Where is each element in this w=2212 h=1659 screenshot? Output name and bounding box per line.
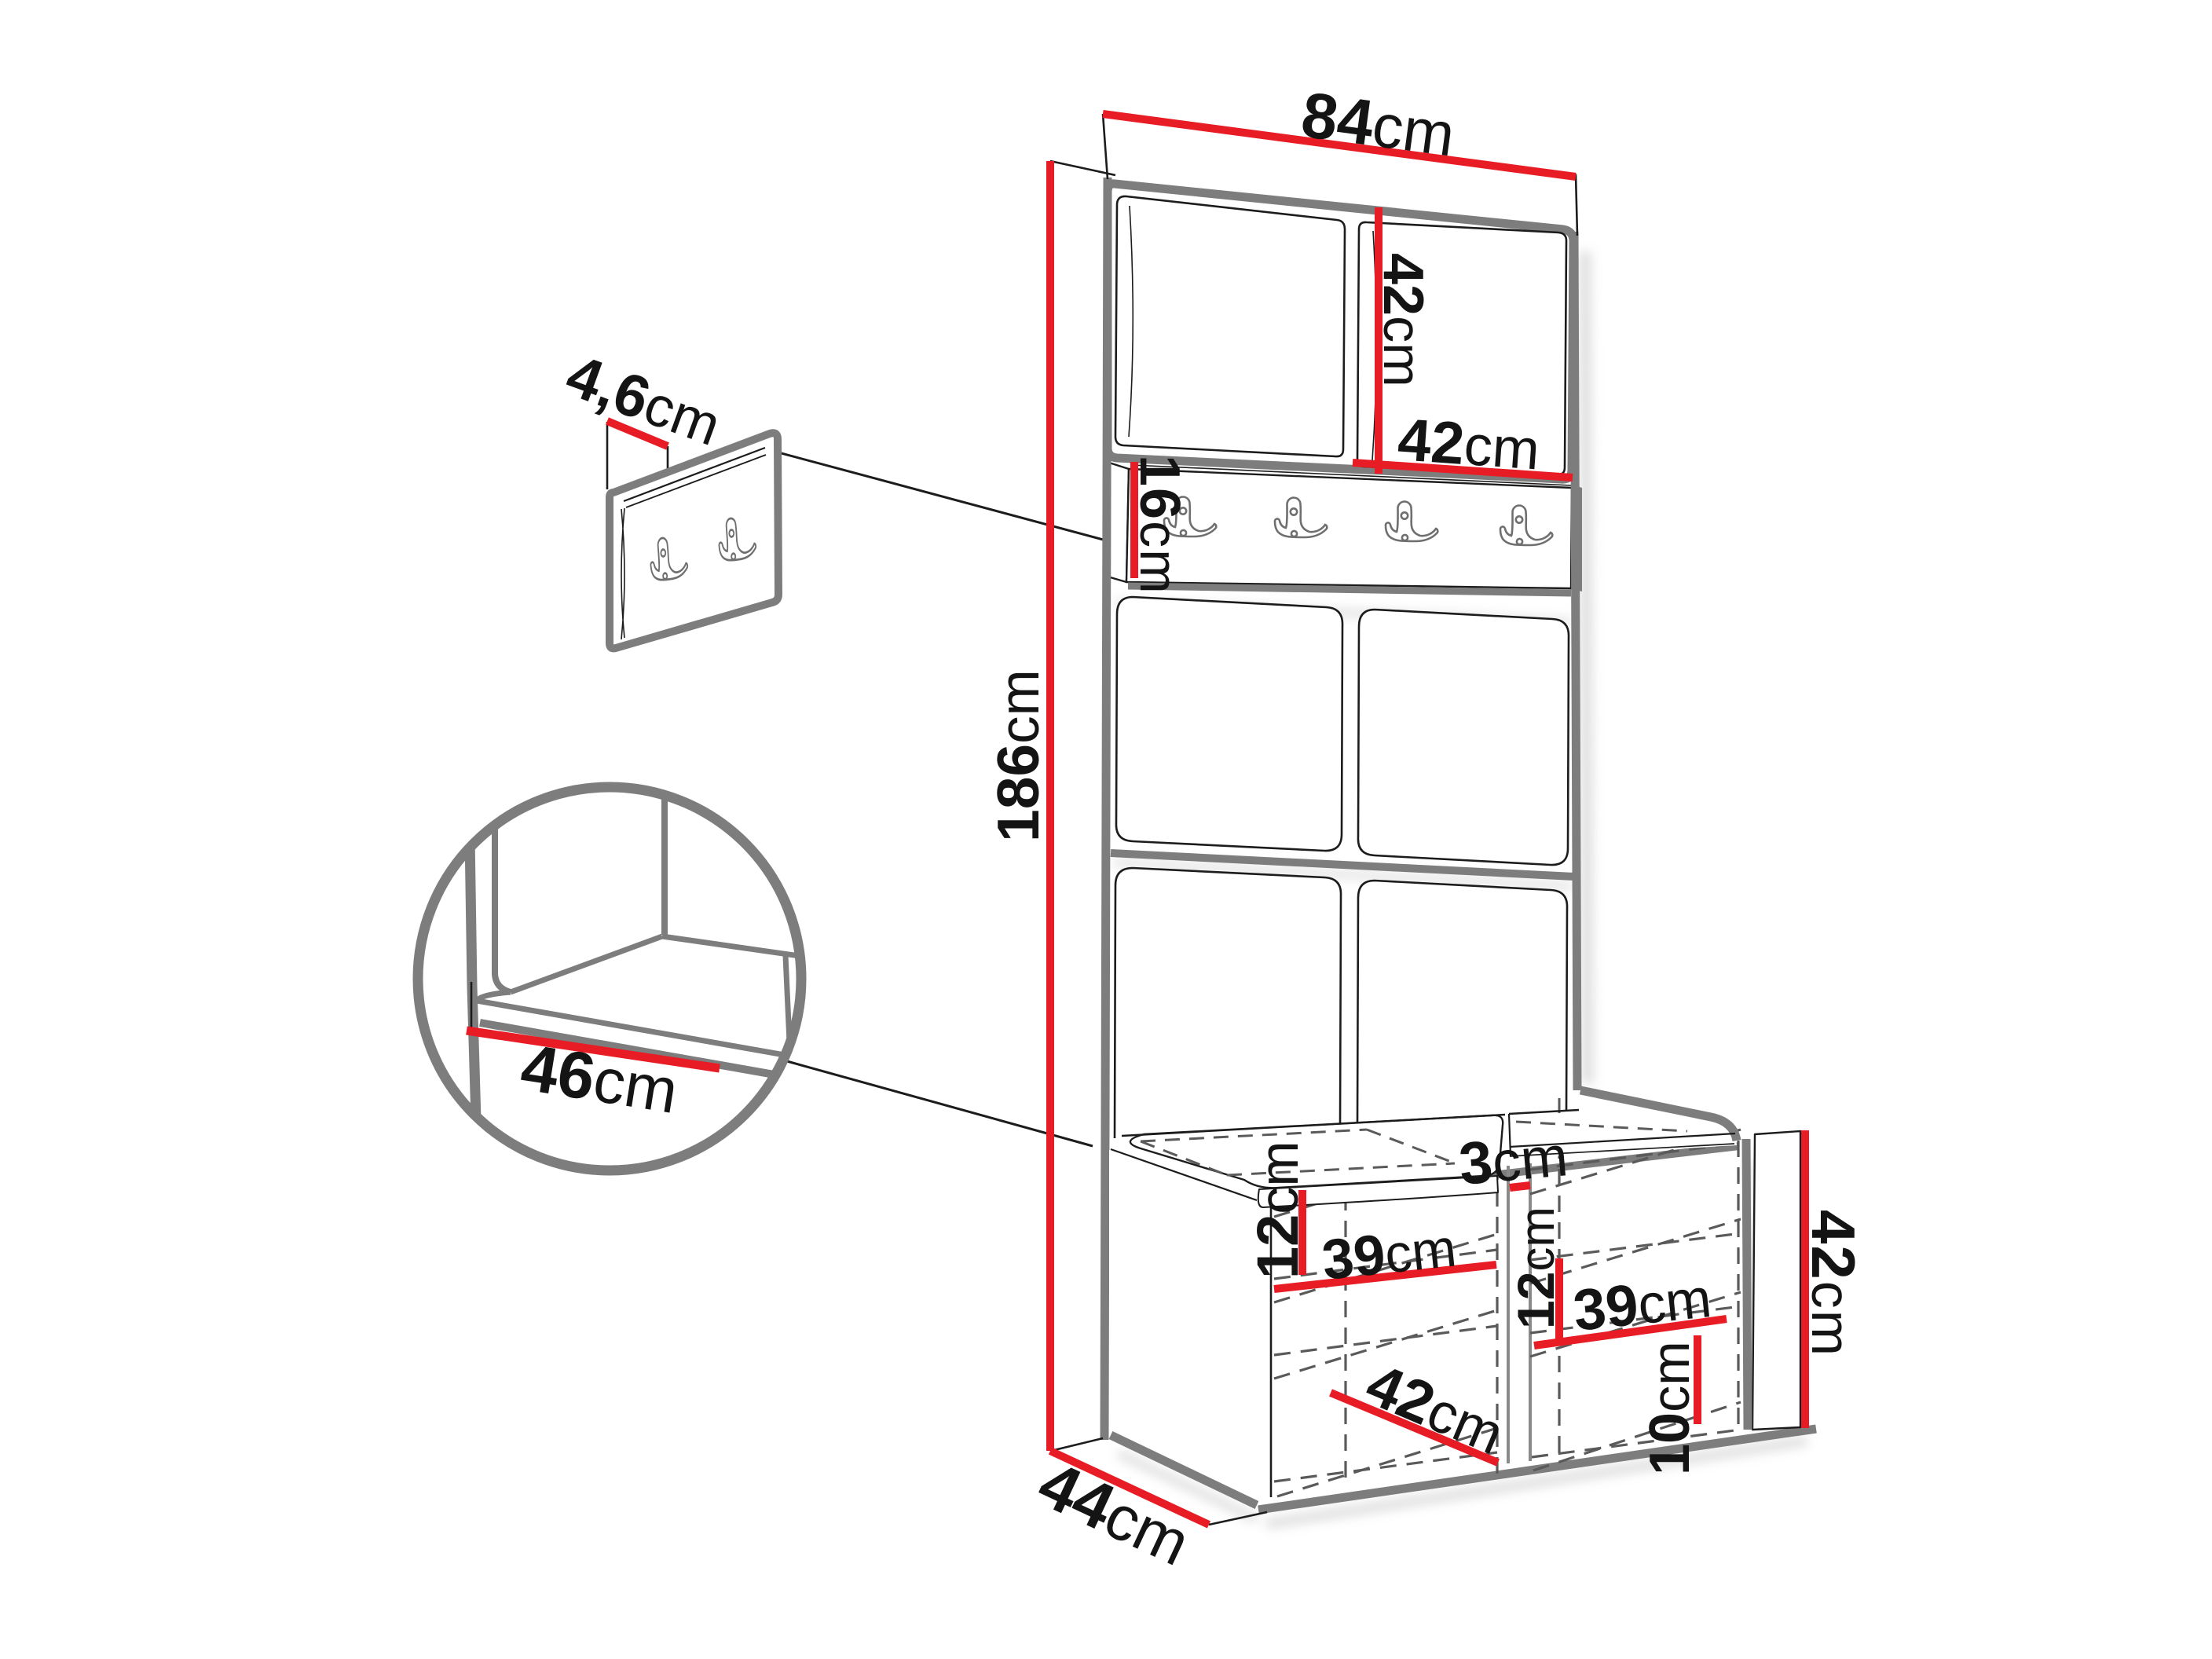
svg-text:42cm: 42cm	[1799, 1210, 1868, 1357]
svg-text:42cm: 42cm	[1396, 406, 1542, 482]
svg-text:12cm: 12cm	[1507, 1207, 1565, 1329]
svg-text:186cm: 186cm	[985, 669, 1051, 842]
svg-text:3cm: 3cm	[1456, 1122, 1570, 1198]
svg-text:12cm: 12cm	[1245, 1141, 1310, 1279]
svg-text:16cm: 16cm	[1128, 455, 1191, 595]
svg-text:10cm: 10cm	[1639, 1341, 1701, 1475]
svg-text:42cm: 42cm	[1372, 253, 1434, 387]
